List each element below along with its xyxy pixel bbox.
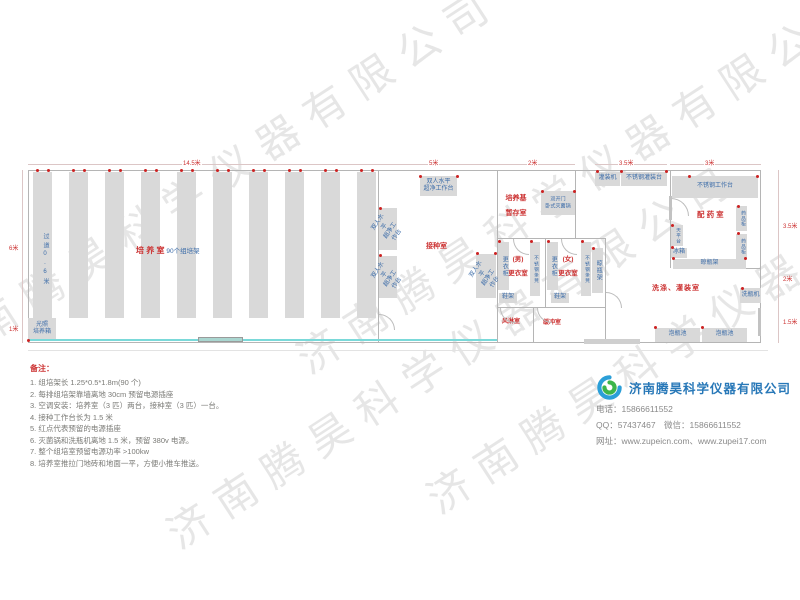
power-outlet-dot (360, 169, 363, 172)
company-website: 网址：www.zupeicn.com、www.zupei17.com (596, 434, 796, 449)
sliding-door (198, 337, 243, 342)
dim-label-top-filling: 3.5米 (618, 161, 634, 168)
power-outlet-dot (155, 169, 158, 172)
filling-machine-label: 灌装机 (598, 175, 616, 183)
culture-rack (141, 172, 160, 318)
note-item: 7. 整个组培室预留电源功率 >100kw (30, 446, 360, 458)
power-outlet-dot (671, 246, 674, 249)
power-outlet-dot (324, 169, 327, 172)
door-leaf (758, 308, 761, 336)
power-outlet-dot (27, 339, 30, 342)
company-section: 济南腾昊科学仪器有限公司 电话：15866611552 QQ：57437467 … (596, 374, 796, 449)
shoe-rack-box: 鞋架 (551, 293, 569, 303)
clean-bench-left-1: 双人水平 超净工作台 (379, 208, 397, 250)
wall (575, 170, 576, 238)
power-outlet-dot (701, 326, 704, 329)
power-outlet-dot (665, 170, 668, 173)
medicine-cabinet-box: 药品柜 (736, 234, 747, 259)
power-outlet-dot (744, 257, 747, 260)
bottle-washer-box: 洗瓶机 (740, 288, 761, 303)
power-outlet-dot (180, 169, 183, 172)
washing-room-label: 洗涤、灌装室 (652, 285, 700, 292)
ground-line (28, 350, 768, 351)
company-phone: 电话：15866611552 (596, 402, 796, 417)
power-outlet-dot (541, 190, 544, 193)
power-outlet-dot (456, 175, 459, 178)
power-outlet-dot (419, 175, 422, 178)
power-outlet-dot (191, 169, 194, 172)
steel-bench-label: 不锈钢条凳 (583, 255, 589, 283)
work-table-label: 不锈钢工作台 (697, 183, 733, 191)
note-item: 3. 空调安装：培养室（3 匹）两台，接种室（3 匹）一台。 (30, 400, 360, 412)
soak-pool-box: 泡瓶池 (702, 328, 747, 342)
bottle-rack-label: 晾瓶架 (700, 260, 718, 268)
power-outlet-dot (36, 169, 39, 172)
incubator-label: 光照 培养箱 (33, 322, 51, 337)
medicine-cabinet-label: 药品柜 (739, 238, 745, 255)
culture-rack (357, 172, 376, 318)
power-outlet-dot (547, 240, 550, 243)
storage-room-label: 培养基 暂存室 (501, 192, 531, 221)
notes-section: 备注： 1. 组培架长 1.25*0.5*1.8m(90 个)2. 每排组培架靠… (30, 363, 360, 469)
door-leaf (669, 196, 672, 220)
dim-label-top-pharmacy: 3米 (704, 161, 715, 168)
power-outlet-dot (108, 169, 111, 172)
power-outlet-dot (498, 240, 501, 243)
note-item: 8. 培养室推拉门地砖和地面一平，方便小推车推送。 (30, 458, 360, 470)
wall (533, 307, 534, 343)
power-outlet-dot (573, 190, 576, 193)
company-qq-wechat: QQ：57437467 微信：15866611552 (596, 418, 796, 433)
power-outlet-dot (737, 205, 740, 208)
steel-bench-label: 不锈钢条凳 (532, 255, 538, 283)
rack-rows (28, 170, 378, 342)
power-outlet-dot (671, 224, 674, 227)
clean-bench-right: 双人水平 超净工作台 (476, 254, 496, 298)
power-outlet-dot (596, 170, 599, 173)
bottle-rack-horizontal: 晾瓶架 (673, 259, 746, 269)
incubator-box: 光照 培养箱 (28, 318, 56, 340)
floor-plan-page: 济南腾昊科学仪器有限公司 济南腾昊科学仪器有限公司 济南腾昊科学仪器有限公司 济… (0, 0, 800, 600)
power-outlet-dot (530, 240, 533, 243)
company-logo-icon (596, 374, 623, 401)
power-outlet-dot (379, 254, 382, 257)
company-header: 济南腾昊科学仪器有限公司 (596, 374, 796, 401)
power-outlet-dot (737, 232, 740, 235)
power-outlet-dot (494, 252, 497, 255)
soak-pool-label: 泡瓶池 (668, 331, 686, 339)
power-outlet-dot (299, 169, 302, 172)
bottle-rack-vertical: 晾瓶架 (592, 248, 603, 293)
power-outlet-dot (83, 169, 86, 172)
company-name: 济南腾昊科学仪器有限公司 (629, 378, 791, 397)
power-outlet-dot (592, 247, 595, 250)
soak-pool-box: 泡瓶池 (655, 328, 700, 342)
door-segment (584, 339, 640, 344)
clean-bench-left-2: 双人水平 超净工作台 (379, 256, 397, 298)
steel-bench-box: 不锈钢条凳 (581, 242, 591, 296)
power-outlet-dot (288, 169, 291, 172)
power-outlet-dot (741, 287, 744, 290)
power-outlet-dot (371, 169, 374, 172)
dim-label-left-bottom: 1米 (8, 327, 19, 334)
dim-label-top-culture: 14.5米 (182, 161, 202, 168)
dim-line (778, 170, 779, 343)
male-dressing-label: (男) 更衣室 (505, 253, 531, 280)
filling-machine-box: 灌装机 (595, 172, 620, 186)
inoculation-room-label: 接种室 (426, 243, 447, 250)
note-item: 2. 每排组培架靠墙离地 30cm 预留电源插座 (30, 389, 360, 401)
wall (545, 238, 546, 307)
dim-label-right-top: 3.5米 (782, 224, 798, 231)
medicine-cabinet-label: 药品柜 (739, 210, 745, 227)
dim-label-top-storage: 2米 (527, 161, 538, 168)
culture-rack (321, 172, 340, 318)
dim-line (22, 170, 23, 343)
dim-label-left-main: 6米 (8, 246, 19, 253)
power-outlet-dot (335, 169, 338, 172)
dim-label-top-inoculation: 5米 (428, 161, 439, 168)
sterilizer-box: 双开门 卧式灭菌锅 (541, 191, 575, 215)
female-dressing-label: (女) 更衣室 (555, 253, 581, 280)
power-outlet-dot (144, 169, 147, 172)
note-item: 5. 红点代表预留的电源插座 (30, 423, 360, 435)
power-outlet-dot (119, 169, 122, 172)
steel-bench-box: 不锈钢条凳 (530, 242, 540, 296)
aisle-label: 过道0.6米 (41, 233, 50, 305)
balance-table-label: 天平台 (674, 227, 680, 244)
culture-rack (69, 172, 88, 318)
note-item: 6. 灭菌锅和洗瓶机离地 1.5 米，预留 380v 电源。 (30, 435, 360, 447)
power-outlet-dot (216, 169, 219, 172)
power-outlet-dot (654, 326, 657, 329)
clean-bench-top: 双人水平 超净工作台 (420, 176, 457, 196)
power-outlet-dot (688, 175, 691, 178)
fridge-label: 冰箱 (673, 249, 685, 257)
dim-label-right-mid: 2米 (782, 277, 793, 284)
dim-line (670, 164, 761, 165)
culture-rack (105, 172, 124, 318)
dim-label-right-bottom: 1.5米 (782, 320, 798, 327)
cyan-baseline (28, 339, 497, 341)
power-outlet-dot (476, 252, 479, 255)
notes-title: 备注： (30, 363, 360, 374)
power-outlet-dot (47, 169, 50, 172)
note-item: 1. 组培架长 1.25*0.5*1.8m(90 个) (30, 377, 360, 389)
clean-bench-label: 双人水平 超净工作台 (423, 179, 453, 194)
bottle-rack-label: 晾瓶架 (594, 260, 602, 281)
balance-table-box: 天平台 (671, 225, 683, 246)
culture-rack (177, 172, 196, 318)
filling-table-box: 不锈钢灌装台 (621, 172, 667, 186)
racks-count-label: 90个组培架 (166, 248, 199, 255)
notes-list: 1. 组培架长 1.25*0.5*1.8m(90 个)2. 每排组培架靠墙离地 … (30, 377, 360, 469)
wall (605, 238, 606, 343)
culture-room-label: 培 养 室 90个组培架 (136, 247, 200, 256)
filling-table-label: 不锈钢灌装台 (626, 175, 662, 183)
shoe-rack-label: 鞋架 (502, 294, 514, 302)
dim-line (28, 164, 378, 165)
power-outlet-dot (379, 207, 382, 210)
note-item: 4. 接种工作台长为 1.5 米 (30, 412, 360, 424)
power-outlet-dot (756, 175, 759, 178)
sterilizer-label: 双开门 卧式灭菌锅 (545, 197, 571, 210)
work-table-box: 不锈钢工作台 (672, 176, 758, 198)
shoe-rack-label: 鞋架 (554, 294, 566, 302)
power-outlet-dot (620, 170, 623, 173)
culture-room-name: 培 养 室 (136, 246, 164, 255)
soak-pool-label: 泡瓶池 (715, 331, 733, 339)
bottle-washer-label: 洗瓶机 (741, 292, 759, 300)
culture-rack (213, 172, 232, 318)
power-outlet-dot (252, 169, 255, 172)
power-outlet-dot (672, 257, 675, 260)
power-outlet-dot (72, 169, 75, 172)
power-outlet-dot (263, 169, 266, 172)
pharmacy-room-label: 配 药 室 (697, 211, 724, 219)
power-outlet-dot (227, 169, 230, 172)
medicine-cabinet-box: 药品柜 (736, 206, 747, 231)
culture-rack (285, 172, 304, 318)
culture-rack (249, 172, 268, 318)
shoe-rack-box: 鞋架 (499, 293, 517, 303)
power-outlet-dot (581, 240, 584, 243)
